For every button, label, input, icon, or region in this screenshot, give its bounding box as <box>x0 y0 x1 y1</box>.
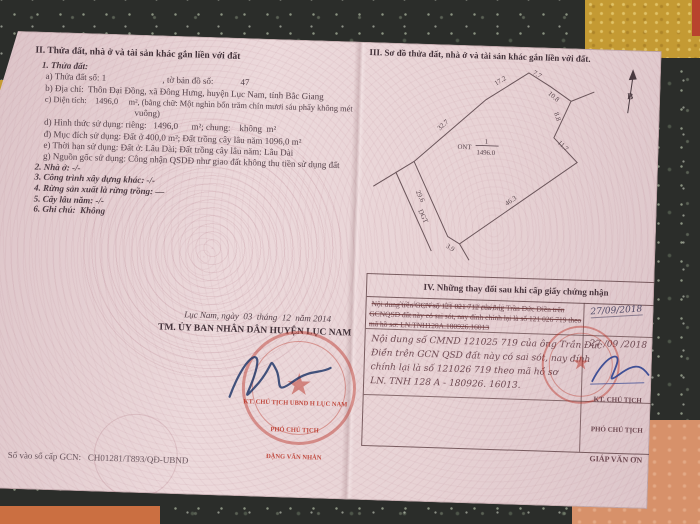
parcel-diagram: 32.7 17.2 7.7 10.8 8.8 11.7 46.3 3.9 29.… <box>351 43 689 313</box>
stamp-text-line2: PHÓ CHỦ TỊCH <box>219 423 369 437</box>
stamp-text-line3: ĐẶNG VĂN NHÀN <box>219 450 369 464</box>
edge-label: 46.3 <box>503 194 518 208</box>
row2-line4: LN. TNH 128 A - 180926. 16013. <box>370 376 521 391</box>
fabric-patch-bottom-left <box>0 506 160 524</box>
area-label: 1496.0 <box>476 149 496 157</box>
north-arrow-icon: B <box>627 69 637 113</box>
area-line-cont: vuông) <box>134 108 160 120</box>
north-label: B <box>627 91 633 101</box>
serial-number-line: Số vào sổ cấp GCN: CH01281/T893/QĐ-UBND <box>7 450 188 467</box>
plot-number-label: 1 <box>485 139 489 146</box>
row2-stamp-line2: PHÓ CHỦ TỊCH <box>575 424 659 437</box>
edge-label: 17.2 <box>493 74 508 87</box>
row2-stamp-line3: GIÁP VĂN ƠN <box>574 454 658 467</box>
edge-label: 29.6 <box>414 189 427 204</box>
certificate-paper: II. Thửa đất, nhà ở và tài sản khác gắn … <box>0 30 662 509</box>
edge-label: 7.7 <box>531 69 543 81</box>
fabric-patch-top-right <box>585 0 700 58</box>
edge-label: 3.9 <box>444 242 456 254</box>
edge-label: 11.7 <box>556 139 571 153</box>
stamp-text-line1: KT. CHỦ TỊCH UBND H LỤC NAM <box>220 396 370 410</box>
photo-of-land-certificate: II. Thửa đất, nhà ở và tài sản khác gắn … <box>0 0 700 524</box>
row1-handwritten-date: 27/09/2018 <box>590 304 642 318</box>
edge-label: 10.8 <box>546 90 561 104</box>
edge-label: 8.8 <box>552 111 562 122</box>
edge-label: 32.7 <box>436 118 451 132</box>
row2-stamp-line1: KT. CHỦ TỊCH <box>576 394 660 407</box>
note-line: 6. Ghi chú: Không <box>33 204 105 217</box>
section4-changes-table: IV. Những thay đổi sau khi cấp giấy chứn… <box>361 273 666 455</box>
row2-line3: chính lại là số 121026 719 theo mã hồ sơ <box>370 362 558 378</box>
land-code-label: ONT <box>457 144 472 151</box>
fabric-red-sliver <box>692 0 700 36</box>
